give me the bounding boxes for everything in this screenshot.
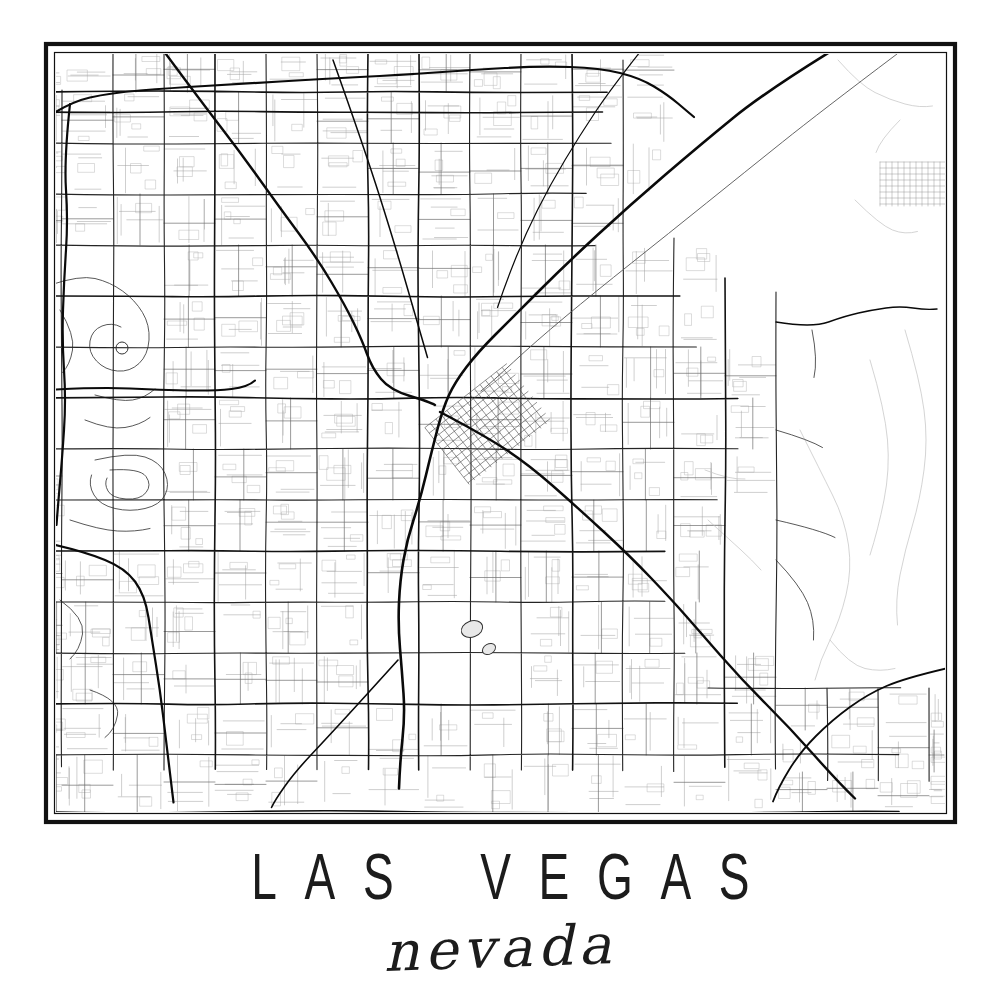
streets-terrain xyxy=(705,60,933,680)
highway-cc-215-southwest xyxy=(55,545,174,803)
lake-0 xyxy=(459,618,485,641)
streets-minor xyxy=(46,53,943,811)
title-block: LAS VEGAS nevada xyxy=(0,840,1000,980)
streets-artMajor xyxy=(46,52,899,813)
highway-i-515-southeast xyxy=(440,412,855,799)
lake-1 xyxy=(480,641,497,657)
highway-union-pacific-rail xyxy=(481,54,897,391)
highway-lake-mead-blvd-east xyxy=(776,307,937,325)
streets-medium xyxy=(46,52,944,812)
highway-cc-215-west-beltway xyxy=(57,104,71,525)
highway-summerlin-parkway xyxy=(46,381,255,391)
map-streets-layer xyxy=(46,46,951,813)
poster-root: LAS VEGAS nevada xyxy=(0,0,1000,1000)
streets-fine xyxy=(880,162,946,206)
poster-title: LAS VEGAS xyxy=(223,840,777,914)
